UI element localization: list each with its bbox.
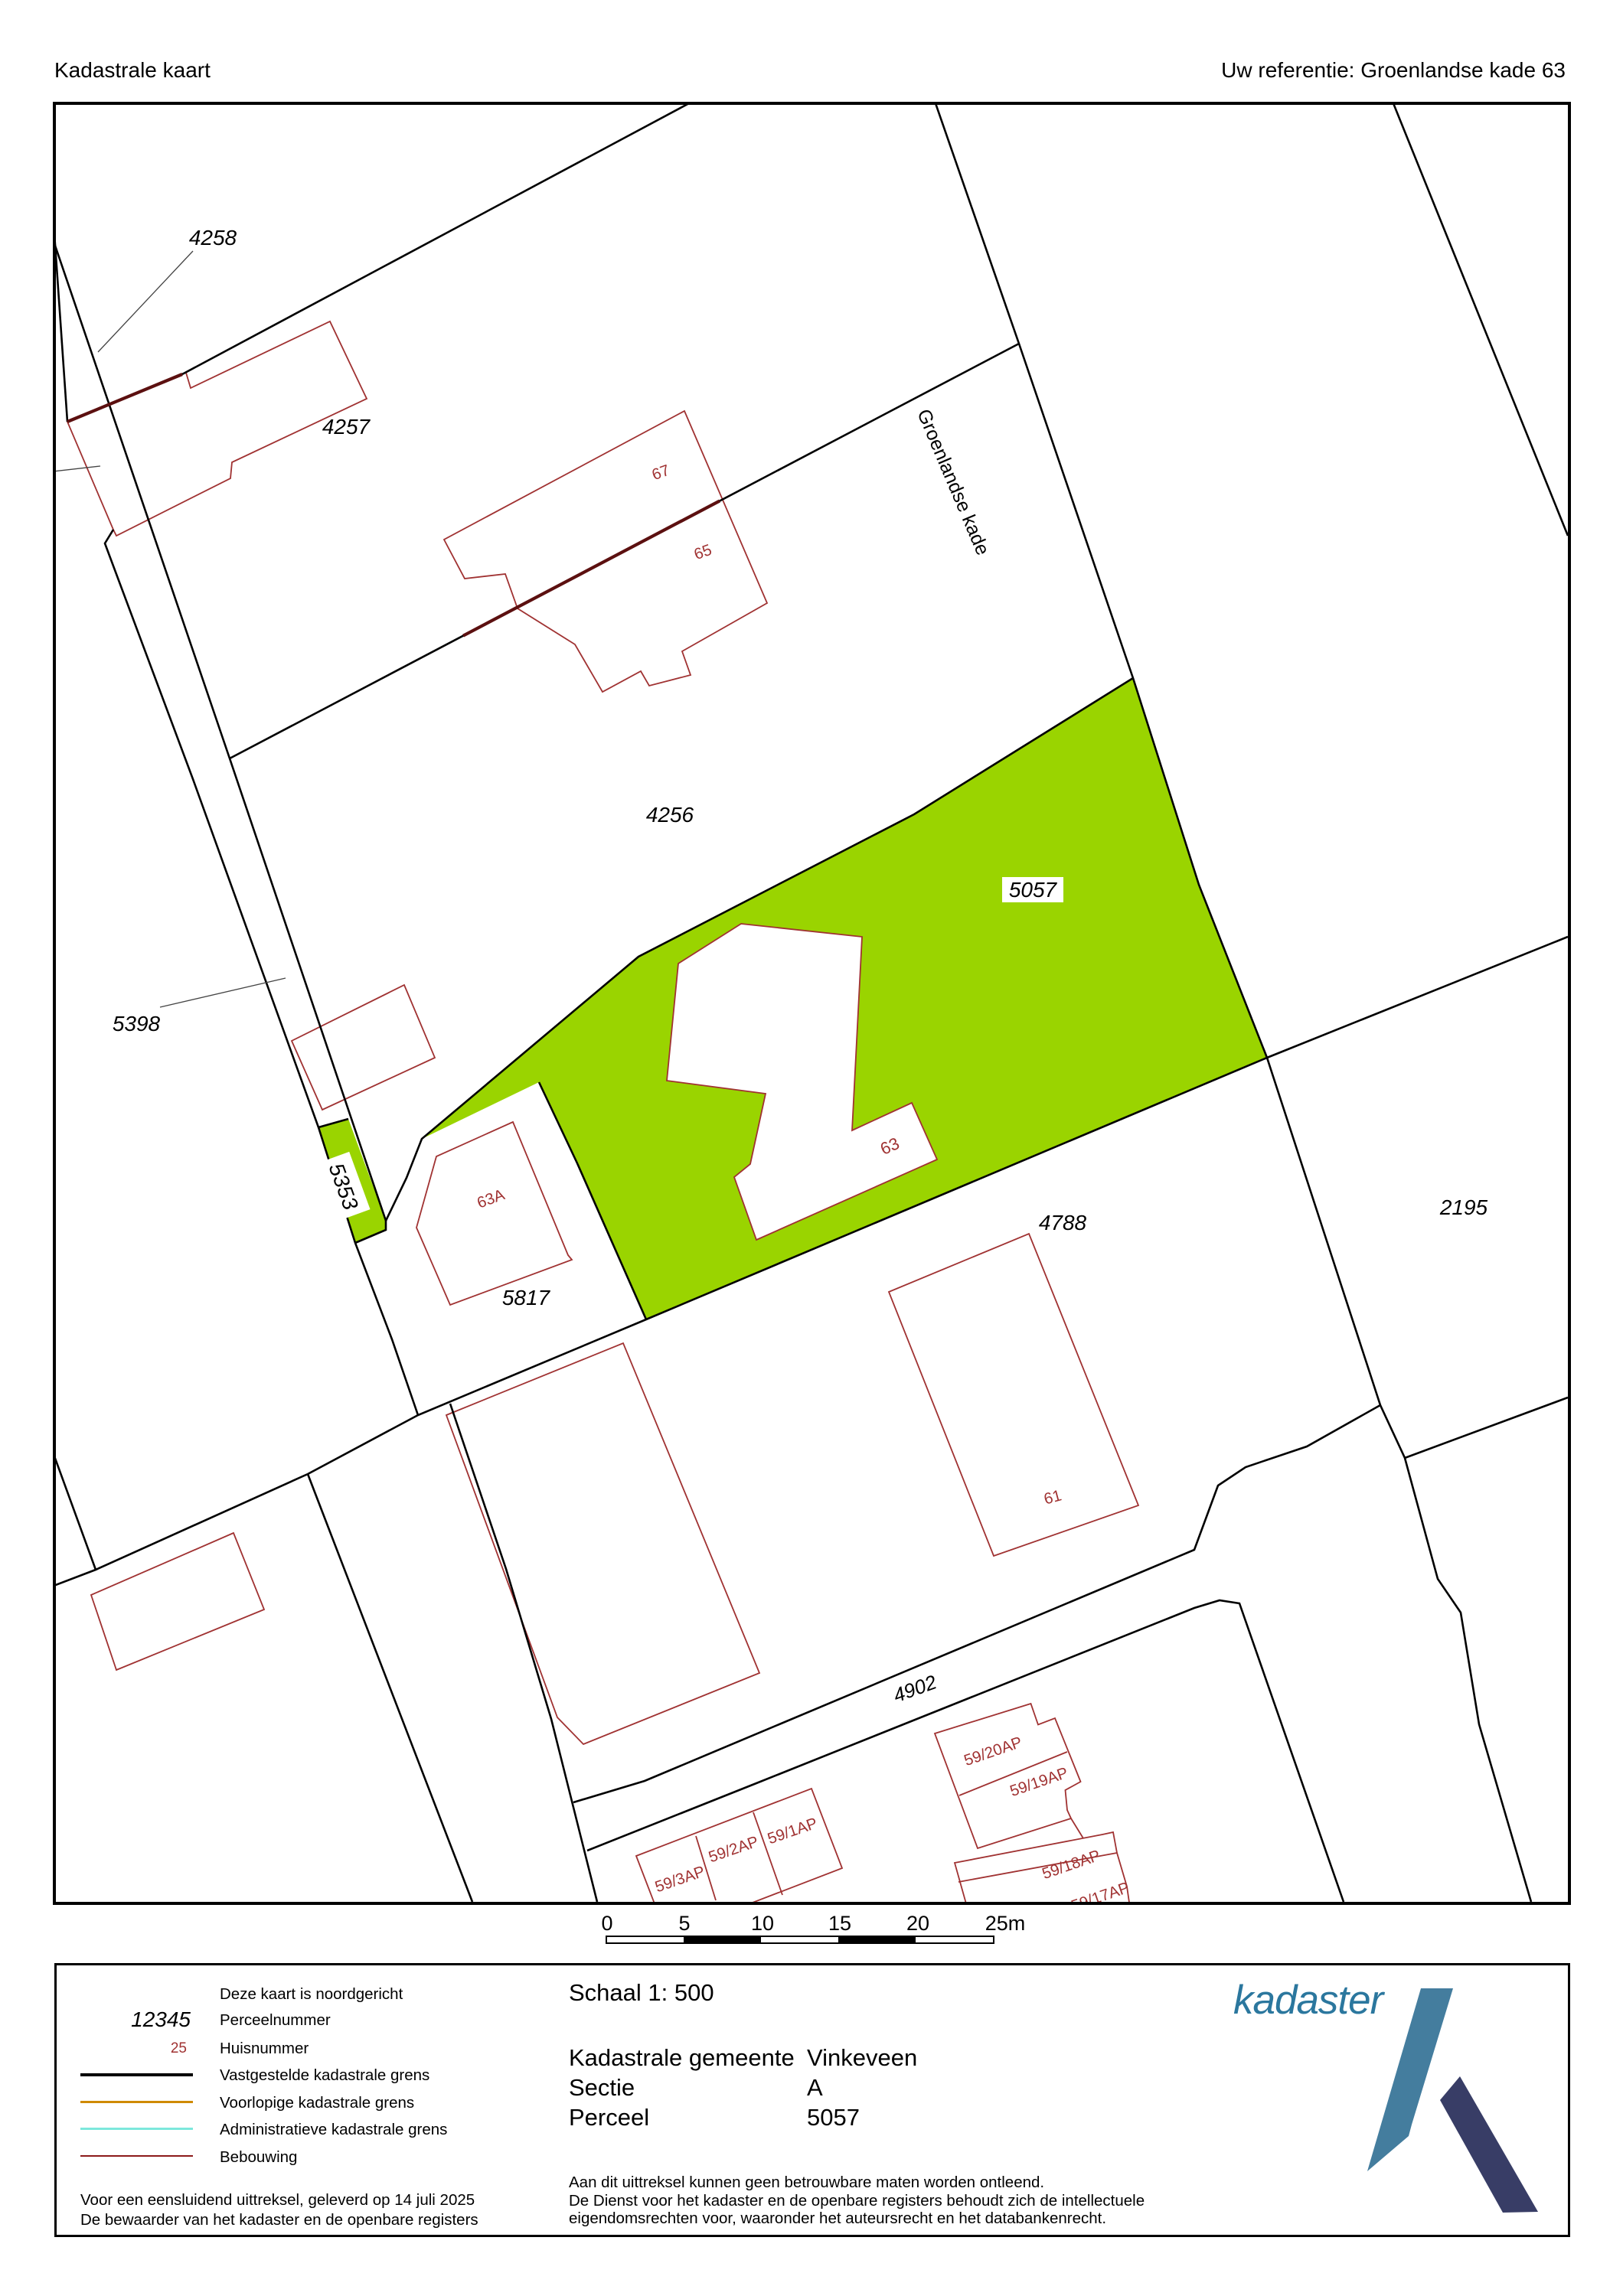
svg-text:63A: 63A [475, 1186, 507, 1212]
svg-text:59/20AP: 59/20AP [962, 1733, 1024, 1769]
svg-text:59/18AP: 59/18AP [1040, 1847, 1102, 1883]
svg-text:67: 67 [650, 461, 672, 484]
svg-text:10: 10 [751, 1912, 774, 1935]
svg-text:4256: 4256 [646, 803, 694, 827]
svg-text:4257: 4257 [322, 415, 371, 439]
svg-text:4788: 4788 [1039, 1211, 1087, 1234]
svg-text:61: 61 [1042, 1486, 1063, 1508]
svg-text:0: 0 [601, 1912, 612, 1935]
svg-text:59/1AP: 59/1AP [766, 1815, 820, 1848]
svg-text:15: 15 [828, 1912, 851, 1935]
svg-text:25m: 25m [985, 1912, 1026, 1935]
svg-text:59/2AP: 59/2AP [707, 1833, 761, 1867]
svg-text:59/17AP: 59/17AP [1069, 1879, 1132, 1902]
svg-text:5: 5 [678, 1912, 690, 1935]
svg-text:59/3AP: 59/3AP [653, 1863, 707, 1896]
svg-text:20: 20 [906, 1912, 929, 1935]
svg-text:Groenlandse kade: Groenlandse kade [913, 406, 994, 558]
svg-text:59/19AP: 59/19AP [1007, 1764, 1070, 1800]
svg-text:5057: 5057 [1009, 878, 1058, 902]
svg-text:65: 65 [692, 541, 714, 563]
svg-text:5398: 5398 [113, 1012, 161, 1035]
svg-text:2195: 2195 [1439, 1195, 1488, 1219]
svg-text:5817: 5817 [502, 1286, 551, 1309]
svg-text:4258: 4258 [189, 226, 237, 249]
